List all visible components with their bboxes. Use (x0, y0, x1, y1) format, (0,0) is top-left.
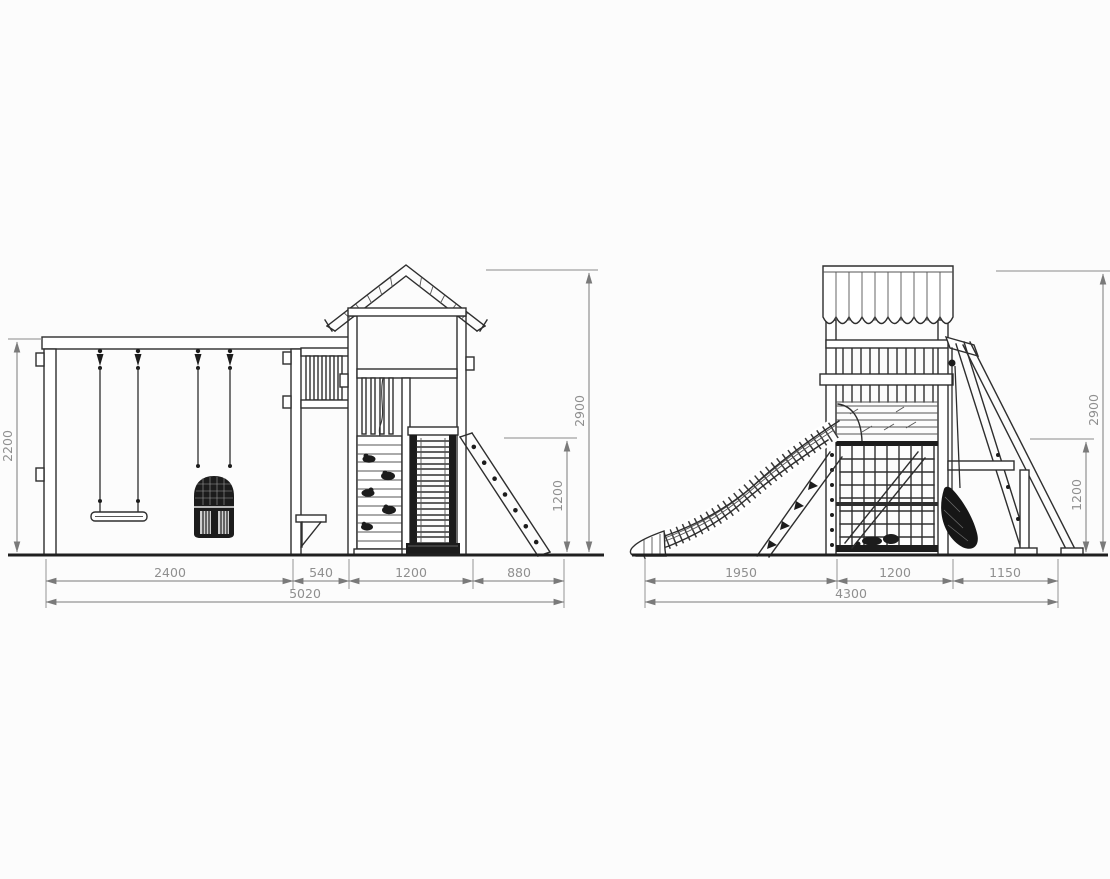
dim-label-2200: 2200 (0, 430, 15, 462)
beam-bracket (946, 337, 978, 356)
ladder-rung-holes (472, 445, 539, 545)
playground-technical-drawing: 2200 2900 1200 24 (0, 0, 1110, 879)
climbing-tower-front (325, 265, 487, 555)
dim-label-880: 880 (507, 565, 531, 580)
dim-label-5020: 5020 (289, 586, 321, 601)
slide-runout-foot (630, 531, 666, 556)
drawing-canvas: 2200 2900 1200 24 (0, 0, 1110, 879)
rock-climbing-wall (357, 436, 402, 549)
dim-label-4300: 4300 (835, 586, 867, 601)
dim-label-2400: 2400 (154, 565, 186, 580)
dim-label-540: 540 (309, 565, 333, 580)
dim-label-front-1200v: 1200 (550, 480, 565, 512)
side-elevation-view: 2900 1200 1950 1200 1150 4300 (630, 266, 1110, 608)
dim-label-side-2900: 2900 (1086, 394, 1101, 426)
dim-label-1150: 1150 (989, 565, 1021, 580)
dim-label-side-1200v: 1200 (1069, 479, 1084, 511)
front-elevation-view: 2200 2900 1200 24 (0, 265, 604, 608)
dim-label-side-1200h: 1200 (879, 565, 911, 580)
swing-flat-seat (91, 349, 147, 521)
access-ladder (460, 433, 550, 556)
side-deck (836, 404, 938, 446)
dim-front-bottom-chain: 2400 540 1200 880 5020 (46, 559, 564, 608)
swing-beam-end (820, 374, 953, 385)
cargo-net (830, 446, 938, 552)
rope-net-ladder (406, 427, 460, 554)
scalloped-roof (823, 266, 953, 324)
dim-label-1950: 1950 (725, 565, 757, 580)
dim-label-front-2900: 2900 (572, 395, 587, 427)
swing-hanger-icon (195, 349, 234, 370)
a-frame-swing-support (941, 337, 1083, 555)
dim-front-height-2200: 2200 (0, 339, 42, 552)
side-upper-railing (820, 340, 953, 402)
dim-side-height-2900: 2900 (996, 271, 1110, 552)
dim-front-height-2900: 2900 (486, 270, 598, 552)
slide-entry-curve (838, 404, 862, 441)
swing-bucket-seat (194, 349, 234, 538)
upper-railing (362, 378, 393, 441)
bench-seat (296, 515, 326, 522)
swing-pivot (949, 360, 956, 367)
dim-label-front-1200h: 1200 (395, 565, 427, 580)
swing-hanger-icon (97, 349, 142, 370)
dim-front-height-1200: 1200 (504, 438, 577, 552)
dim-side-bottom-chain: 1950 1200 1150 4300 (645, 559, 1058, 608)
wave-slide (630, 421, 839, 556)
